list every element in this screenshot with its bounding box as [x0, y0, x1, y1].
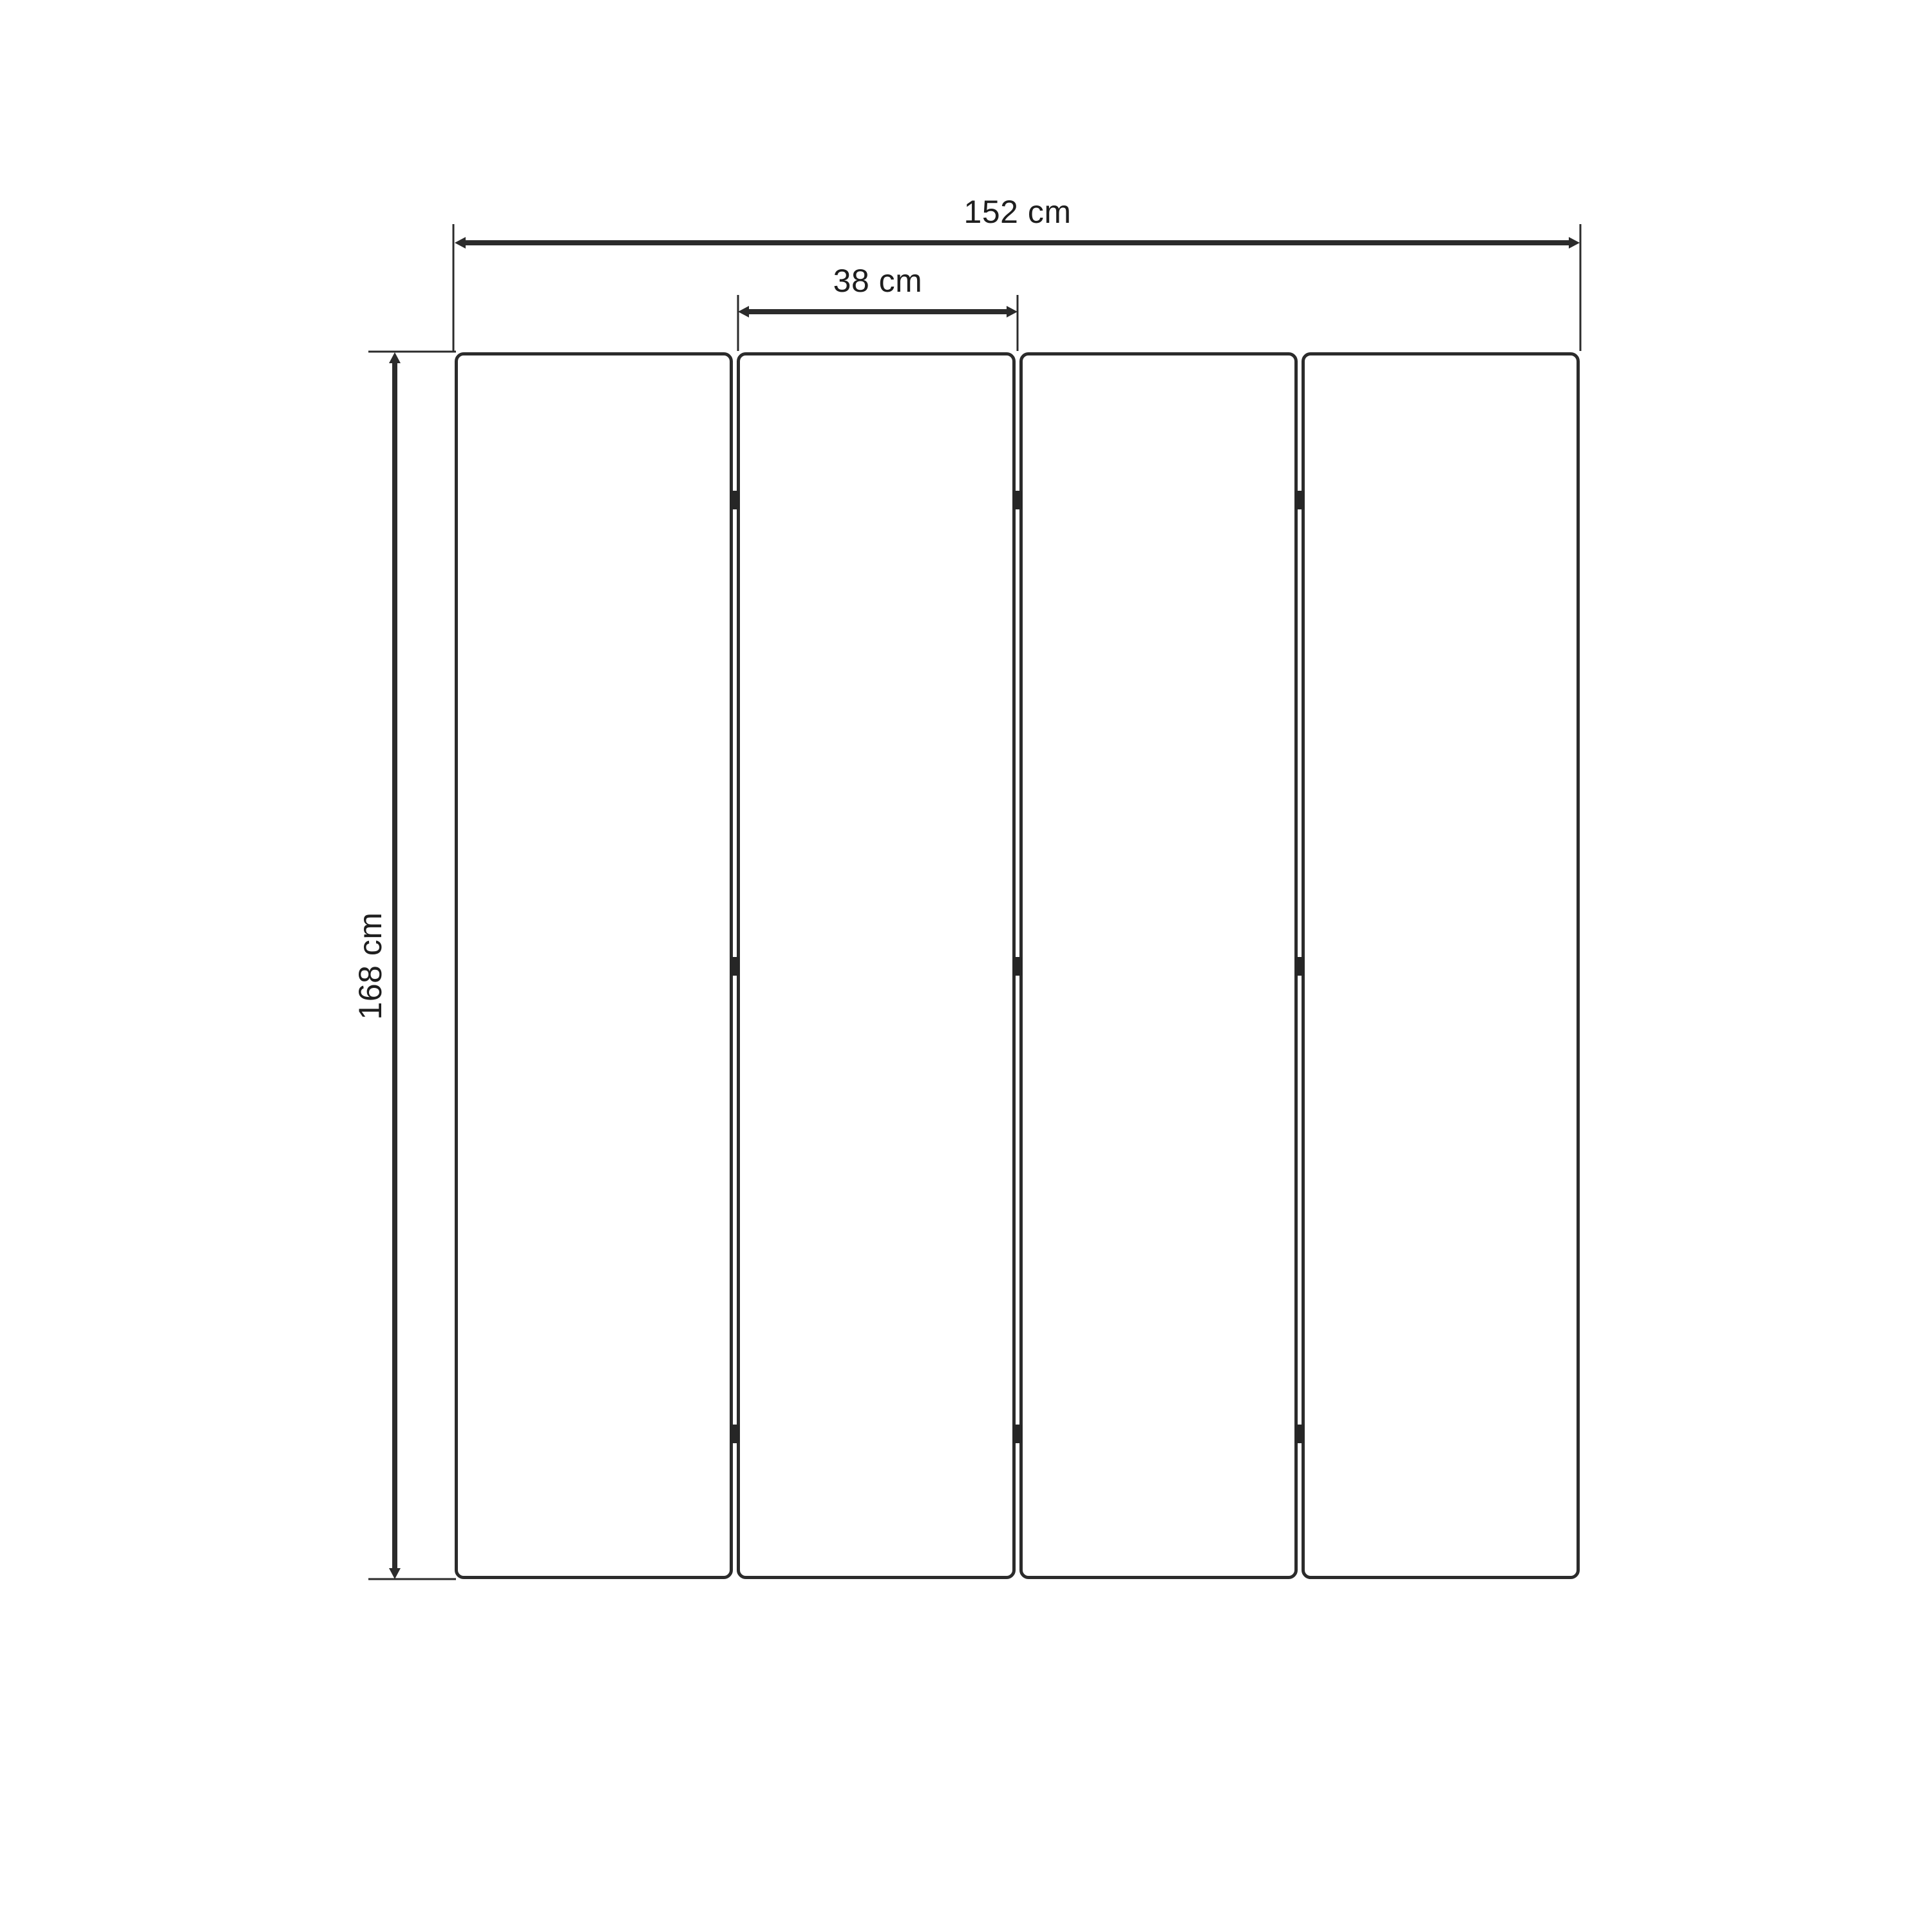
arrowhead-total-width-right-icon — [1569, 237, 1580, 249]
height-label: 168 cm — [354, 913, 387, 1020]
hinge-joint1-bottom — [730, 1425, 739, 1443]
arrowhead-panel-width-left-icon — [738, 306, 749, 317]
panel-4 — [1302, 352, 1580, 1579]
panel-2 — [737, 352, 1015, 1579]
total-width-label: 152 cm — [964, 195, 1072, 229]
hinge-joint3-bottom — [1295, 1425, 1304, 1443]
diagram-canvas: 152 cm 38 cm 168 cm — [0, 0, 1932, 1932]
hinge-joint2-middle — [1013, 957, 1022, 976]
arrowhead-height-bottom-icon — [389, 1568, 401, 1579]
hinge-joint2-bottom — [1013, 1425, 1022, 1443]
hinge-joint3-top — [1295, 491, 1304, 509]
hinge-joint1-top — [730, 491, 739, 509]
arrowhead-total-width-left-icon — [455, 237, 466, 249]
hinge-joint2-top — [1013, 491, 1022, 509]
hinge-joint1-middle — [730, 957, 739, 976]
panel-3 — [1019, 352, 1298, 1579]
arrowhead-height-top-icon — [389, 352, 401, 363]
arrowhead-panel-width-right-icon — [1007, 306, 1018, 317]
panel-width-label: 38 cm — [833, 264, 923, 298]
hinge-joint3-middle — [1295, 957, 1304, 976]
panel-1 — [455, 352, 733, 1579]
